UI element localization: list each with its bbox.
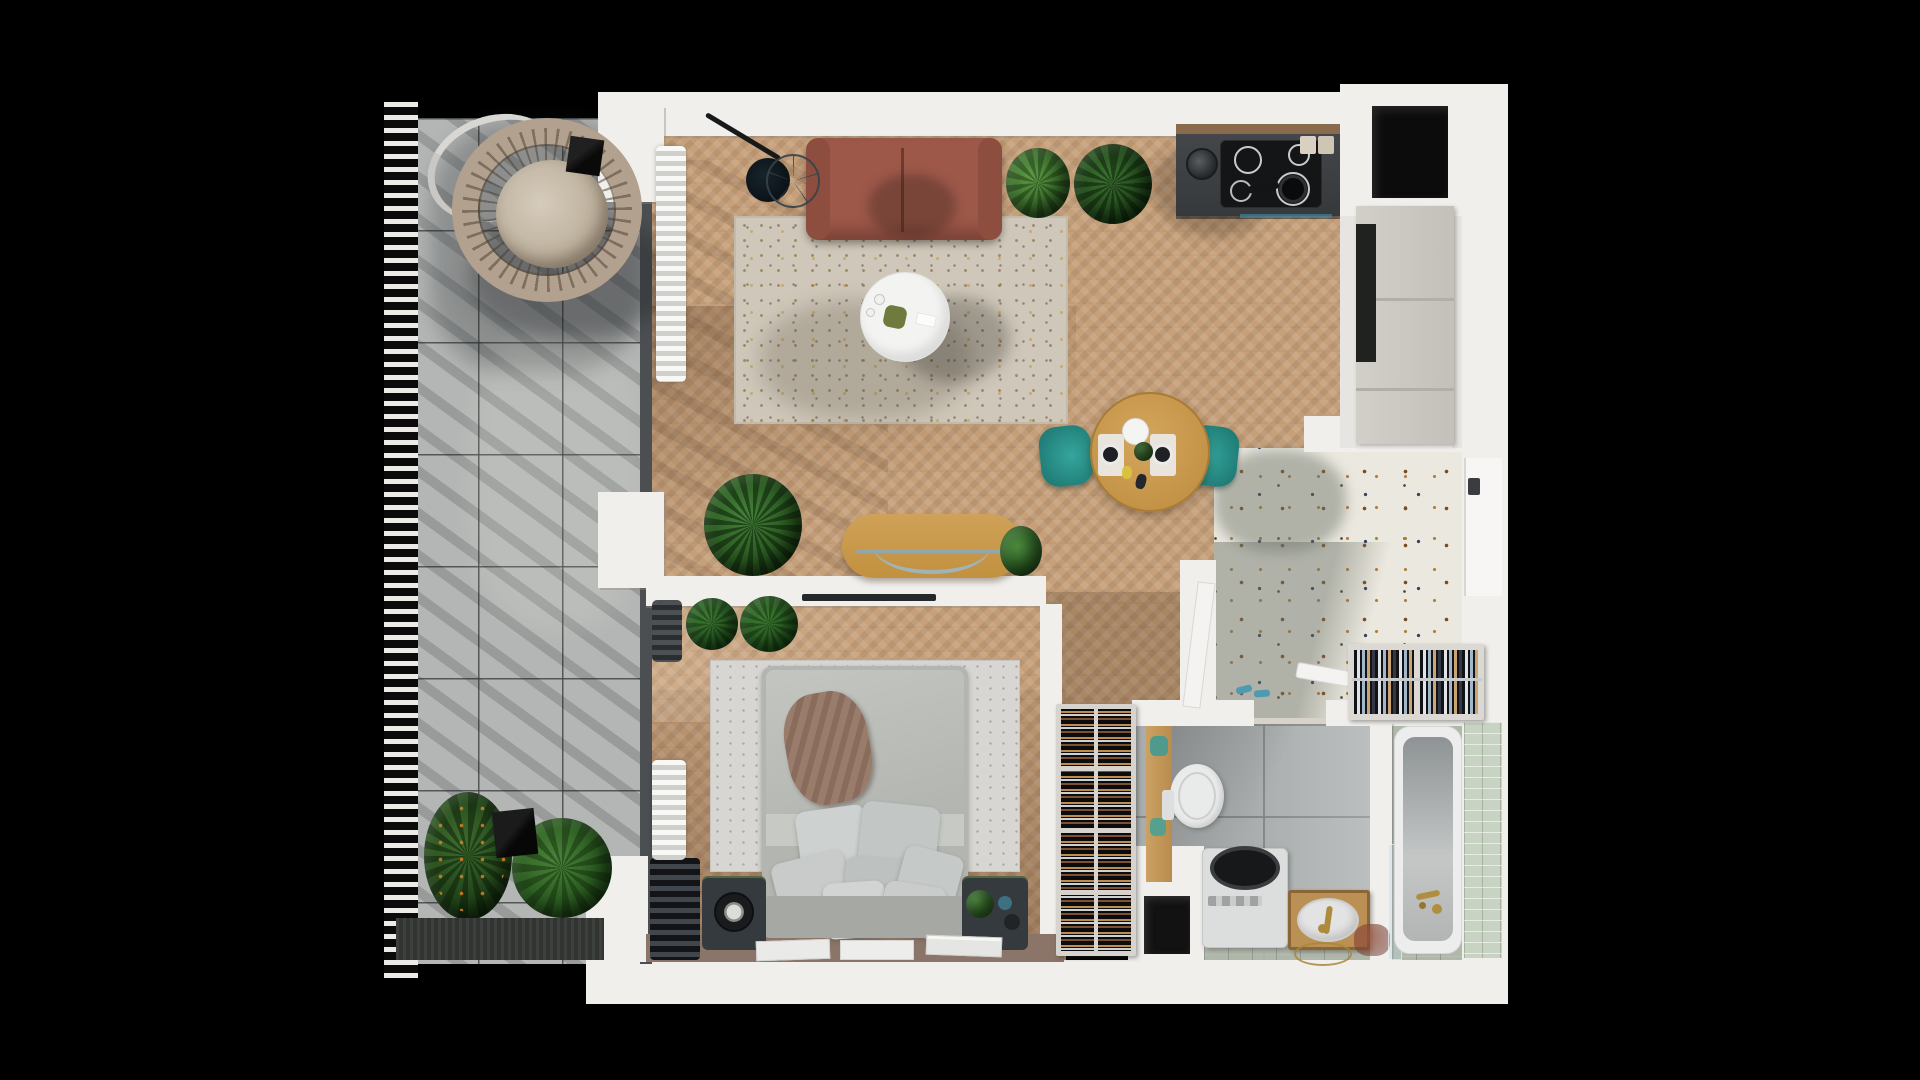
basin-knob (1318, 924, 1327, 933)
wall-bottom (586, 960, 1508, 1004)
frying-pan (1279, 175, 1307, 203)
bedroom-radiator (650, 858, 700, 960)
washing-machine-drum (1210, 846, 1280, 890)
bathtub-knob (1432, 904, 1442, 914)
slipper-2 (1254, 689, 1270, 697)
toilet-seat-line (1178, 772, 1216, 820)
bed-headboard (762, 896, 968, 938)
dining-bowl-left (1100, 444, 1121, 465)
nightstand-cup-dark (1004, 914, 1020, 930)
living-palm-plant (704, 474, 802, 576)
dining-plant (1134, 442, 1153, 461)
living-curtain (656, 146, 686, 382)
bedroom-plant-1 (686, 598, 738, 650)
bath-teal-soap (1150, 818, 1166, 836)
dining-chair-left (1037, 423, 1095, 488)
dining-drink (1122, 466, 1132, 479)
balcony-doormat (396, 918, 604, 960)
washing-machine-panel (1208, 896, 1262, 906)
sofa-arm-right (978, 138, 1002, 240)
burner-1 (1234, 146, 1262, 174)
kitchen-plant-small (1006, 148, 1070, 218)
coffee-table-cup-1 (874, 294, 885, 305)
toilet-tank (1162, 790, 1174, 820)
built-in-oven (1356, 224, 1376, 362)
balcony-lantern-bottom (492, 808, 539, 858)
wine-rack-shelf-1 (1056, 766, 1136, 771)
bedroom-curtain-dark (652, 600, 682, 662)
trivet-1 (1300, 136, 1316, 154)
wine-rack-shelf-2 (1056, 828, 1136, 833)
coffee-table-cup-2 (866, 308, 875, 317)
dishwasher-accent (1240, 214, 1332, 218)
bathtub-inner (1403, 737, 1453, 941)
dining-bowl-right (1152, 444, 1173, 465)
floor-drain-ring (1294, 942, 1352, 966)
floor-plan-canvas (0, 0, 1920, 1080)
nightstand-cup-teal (998, 896, 1012, 910)
dried-flowers (1354, 924, 1390, 956)
wardrobe-clothes-left (1354, 650, 1414, 714)
wardrobe-rail (1352, 678, 1482, 681)
balcony-railing (384, 102, 418, 978)
niche-opening (1144, 896, 1190, 954)
sofa-shadow-circle (868, 174, 956, 238)
wall-left-mid (598, 492, 664, 588)
wine-rack-shelf-3 (1056, 890, 1136, 895)
wardrobe-clothes-right (1420, 650, 1478, 714)
kitchen-plant-large (1074, 144, 1152, 224)
nightstand-speaker (714, 892, 754, 932)
tower-seam-2 (1356, 388, 1454, 391)
bathtub-drain (1419, 902, 1426, 909)
shaft-opening (1372, 106, 1448, 198)
kettle (1186, 148, 1218, 180)
trivet-2 (1318, 136, 1334, 154)
hanging-chair-cushion (496, 160, 608, 268)
console-plant (1000, 526, 1042, 576)
nightstand-plant (966, 890, 994, 918)
balcony-lantern-top (566, 136, 605, 176)
bath-teal-cup (1150, 736, 1168, 756)
bedroom-curtain-white (652, 760, 686, 860)
dining-plate-center (1122, 418, 1149, 445)
green-tile-wall (1464, 722, 1502, 958)
bedroom-tv (802, 594, 936, 601)
floor-art-panel-1 (756, 939, 831, 962)
tv-console-arc (874, 520, 990, 574)
arc-lamp-ring (766, 154, 820, 208)
floor-art-panel-2 (840, 940, 914, 960)
bedroom-plant-2 (740, 596, 798, 652)
floor-art-panel-3 (926, 935, 1003, 958)
entry-door-handle (1468, 478, 1480, 495)
